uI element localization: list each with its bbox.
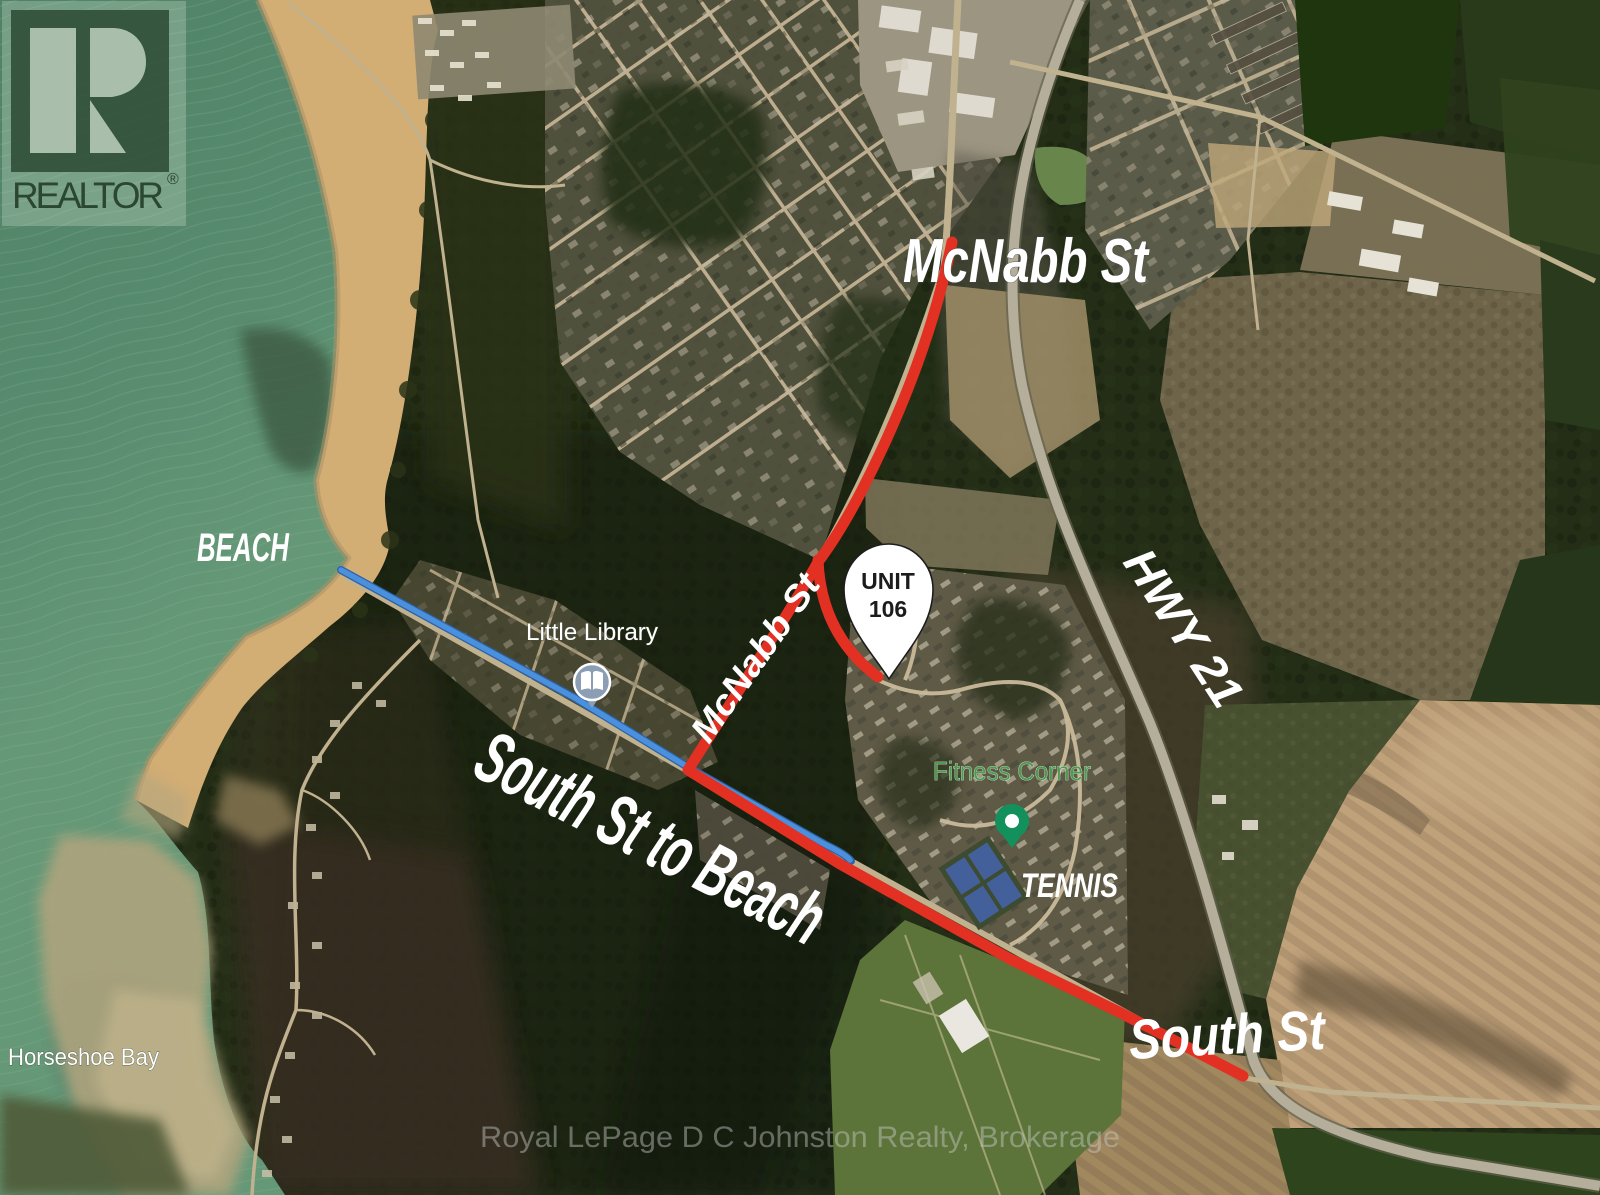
svg-text:106: 106 [869,596,907,622]
svg-text:McNabb St: McNabb St [903,227,1150,296]
svg-text:BEACH: BEACH [197,526,290,570]
svg-text:Little Library: Little Library [526,619,658,646]
svg-text:®: ® [167,171,179,188]
svg-text:TENNIS: TENNIS [1021,867,1118,905]
svg-text:REALTOR: REALTOR [12,175,164,216]
svg-text:Horseshoe Bay: Horseshoe Bay [8,1044,159,1071]
svg-text:South St: South St [1127,998,1328,1071]
svg-text:Royal LePage D C Johnston Real: Royal LePage D C Johnston Realty, Broker… [480,1121,1120,1154]
svg-text:UNIT: UNIT [861,568,915,594]
svg-text:Fitness Corner: Fitness Corner [933,756,1091,786]
